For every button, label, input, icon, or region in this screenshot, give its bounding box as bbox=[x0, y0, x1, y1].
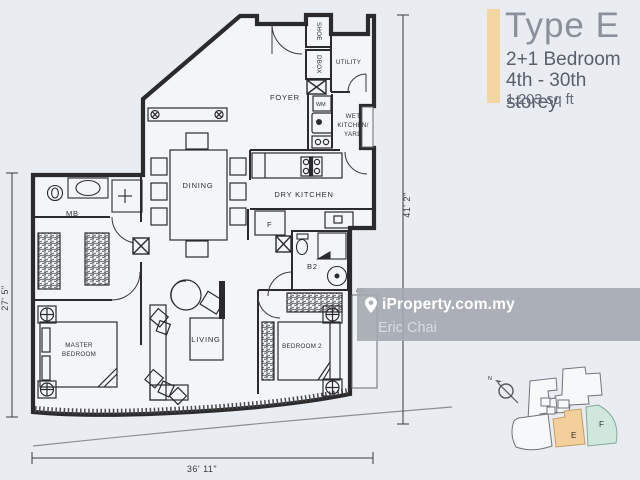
key-plan-label-f: F bbox=[599, 420, 604, 429]
dimension-right: 41' 2" bbox=[402, 192, 412, 217]
north-arrow-icon: N bbox=[488, 376, 518, 403]
map-pin-icon bbox=[365, 297, 377, 313]
room-label-dining: DINING bbox=[182, 181, 213, 190]
wardrobe bbox=[38, 233, 60, 289]
key-plan-unit-e bbox=[553, 409, 585, 447]
room-label-wet-kitchen-1: WET bbox=[346, 113, 361, 120]
area-info: 1,203 sq ft bbox=[506, 92, 574, 108]
dimension-bottom: 36' 11" bbox=[187, 464, 217, 474]
room-label-dbox: DBOX bbox=[315, 55, 322, 74]
unit-type-title: Type E bbox=[505, 6, 620, 46]
room-label-wet-kitchen-3: YARD bbox=[344, 131, 362, 138]
accent-bar bbox=[487, 9, 500, 103]
room-label-shoe: SHOE bbox=[315, 22, 322, 41]
room-label-wet-kitchen-2: KITCHEN/ bbox=[337, 122, 368, 129]
room-label-living: LIVING bbox=[191, 335, 220, 344]
wardrobe bbox=[85, 233, 109, 285]
wardrobe bbox=[287, 293, 342, 312]
label-fridge: F bbox=[267, 220, 272, 229]
floorplan-page: FOYER SHOE DBOX UTILITY WM WET KITCHEN/ … bbox=[0, 0, 640, 480]
exterior-walls bbox=[33, 15, 452, 446]
room-label-dry-kitchen: DRY KITCHEN bbox=[274, 190, 333, 199]
room-label-master-2: BEDROOM bbox=[62, 351, 96, 358]
room-label-foyer: FOYER bbox=[270, 93, 300, 102]
room-label-b2: B2 bbox=[307, 262, 318, 271]
room-label-mb: MB bbox=[66, 209, 79, 218]
watermark-author: Eric Chai bbox=[378, 320, 437, 336]
svg-text:N: N bbox=[488, 376, 492, 382]
room-label-master-1: MASTER bbox=[65, 342, 93, 349]
room-label-utility: UTILITY bbox=[336, 59, 361, 66]
wardrobe bbox=[262, 322, 274, 380]
watermark-banner: iProperty.com.my Eric Chai bbox=[357, 288, 640, 341]
key-plan-label-e: E bbox=[571, 431, 576, 440]
key-plan: E F N bbox=[488, 367, 617, 450]
room-label-bedroom2: BEDROOM 2 bbox=[282, 343, 322, 350]
label-wm: WM bbox=[316, 102, 326, 108]
watermark-brand: iProperty.com.my bbox=[382, 296, 515, 314]
dimension-left: 27' 5" bbox=[0, 285, 10, 310]
bedroom-info: 2+1 Bedroom bbox=[506, 49, 621, 71]
